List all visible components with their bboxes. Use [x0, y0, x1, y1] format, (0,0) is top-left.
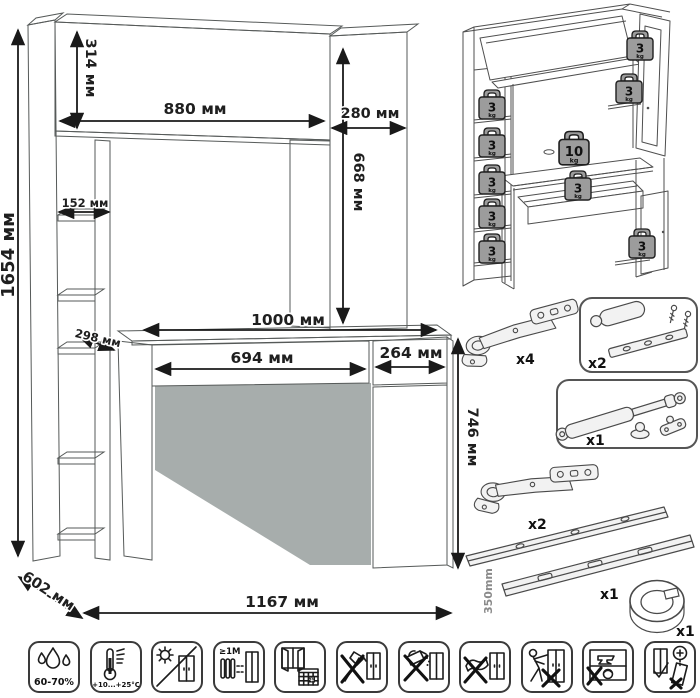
care-icon-heater-distance: ≥1M — [213, 641, 265, 693]
hardware-push-latch: x2 — [580, 298, 697, 372]
care-icon-no-spilling-liquids — [398, 641, 450, 693]
care-icon-temperature: +10...+25°C — [90, 641, 142, 693]
care-icon-no-heavy-objects-inside — [582, 641, 634, 693]
svg-text:25: 25 — [309, 677, 315, 683]
slides-qty: x1 — [600, 587, 619, 603]
svg-text:60-70%: 60-70% — [34, 677, 74, 688]
latch-qty: x2 — [588, 356, 607, 372]
care-icon-ventilation: 25 — [274, 641, 326, 693]
hardware-euro-hinge: x4 — [457, 298, 584, 368]
hardware-gas-lift: x1 — [554, 380, 697, 449]
svg-text:≥1M: ≥1M — [219, 647, 241, 657]
care-icon-no-direct-sunlight — [151, 641, 203, 693]
slide-length-label: 350mm — [482, 568, 495, 614]
care-icon-no-moving-loaded — [521, 641, 573, 693]
gas-lift-fittings — [631, 412, 687, 439]
care-icon-humidity: 60-70% — [28, 641, 80, 693]
hinge2-qty: x2 — [528, 517, 547, 533]
care-icon-no-sharp-tools — [336, 641, 388, 693]
hardware-list: x4 x2 — [0, 0, 700, 698]
care-icons-row: 60-70% +10...+25°C ≥1M — [28, 639, 696, 695]
svg-text:+10...+25°C: +10...+25°C — [93, 681, 139, 689]
hinge-qty: x4 — [516, 352, 535, 368]
care-icon-no-wet-cleaning — [459, 641, 511, 693]
care-icon-anchor-to-wall — [644, 641, 696, 693]
furniture-spec-sheet: 1654 мм 314 мм 880 мм 280 мм 668 мм 152 … — [0, 0, 700, 698]
grommet-qty: x1 — [676, 624, 695, 640]
gas-lift-qty: x1 — [586, 433, 605, 449]
hardware-euro-hinge-2: x2 — [474, 454, 600, 533]
